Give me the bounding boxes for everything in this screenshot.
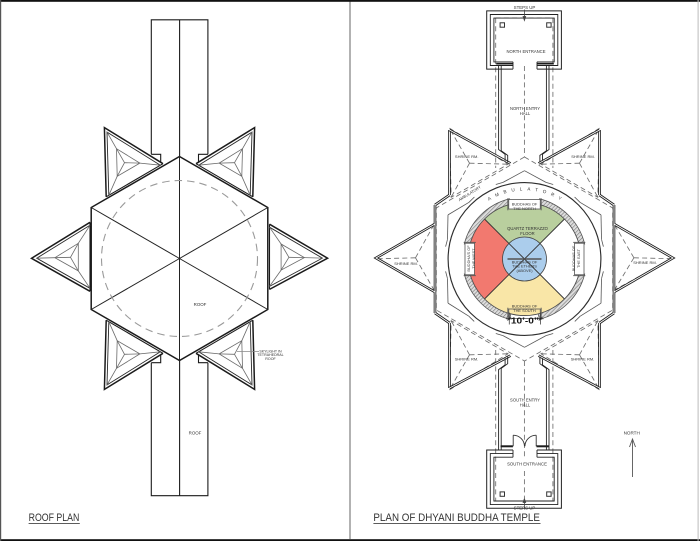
svg-text:ROOF: ROOF bbox=[194, 302, 207, 307]
svg-text:FLOOR: FLOOR bbox=[520, 231, 534, 236]
svg-text:(ABOVE): (ABOVE) bbox=[517, 268, 534, 273]
svg-text:ROOF: ROOF bbox=[189, 431, 202, 436]
svg-text:NORTH: NORTH bbox=[624, 431, 640, 436]
svg-text:SHRINE RM.: SHRINE RM. bbox=[455, 356, 479, 361]
svg-text:THE WEST: THE WEST bbox=[471, 248, 476, 269]
svg-text:HALL: HALL bbox=[520, 403, 531, 408]
svg-text:PLAN OF DHYANI BUDDHA TEMPLE: PLAN OF DHYANI BUDDHA TEMPLE bbox=[373, 512, 540, 524]
svg-text:STEPS UP: STEPS UP bbox=[514, 506, 536, 511]
svg-text:SOUTH ENTRANCE: SOUTH ENTRANCE bbox=[507, 462, 547, 467]
svg-text:10’-0”: 10’-0” bbox=[511, 315, 539, 325]
svg-text:THE EAST: THE EAST bbox=[576, 248, 581, 268]
svg-text:THE SOUTH: THE SOUTH bbox=[513, 308, 536, 313]
svg-text:STEPS UP: STEPS UP bbox=[514, 5, 536, 10]
svg-text:SHRINE RM.: SHRINE RM. bbox=[571, 154, 595, 159]
svg-text:ROOF PLAN: ROOF PLAN bbox=[29, 512, 80, 524]
svg-text:SHRINE RM.: SHRINE RM. bbox=[633, 260, 657, 265]
svg-text:HALL: HALL bbox=[520, 111, 531, 116]
svg-text:ROOF: ROOF bbox=[265, 357, 276, 361]
svg-text:SHRINE RM.: SHRINE RM. bbox=[455, 154, 479, 159]
svg-text:NORTH ENTRANCE: NORTH ENTRANCE bbox=[506, 49, 545, 54]
svg-text:SHRINE RM.: SHRINE RM. bbox=[571, 356, 595, 361]
svg-text:SHRINE RM.: SHRINE RM. bbox=[394, 261, 418, 266]
svg-text:THE NORTH: THE NORTH bbox=[513, 206, 536, 211]
